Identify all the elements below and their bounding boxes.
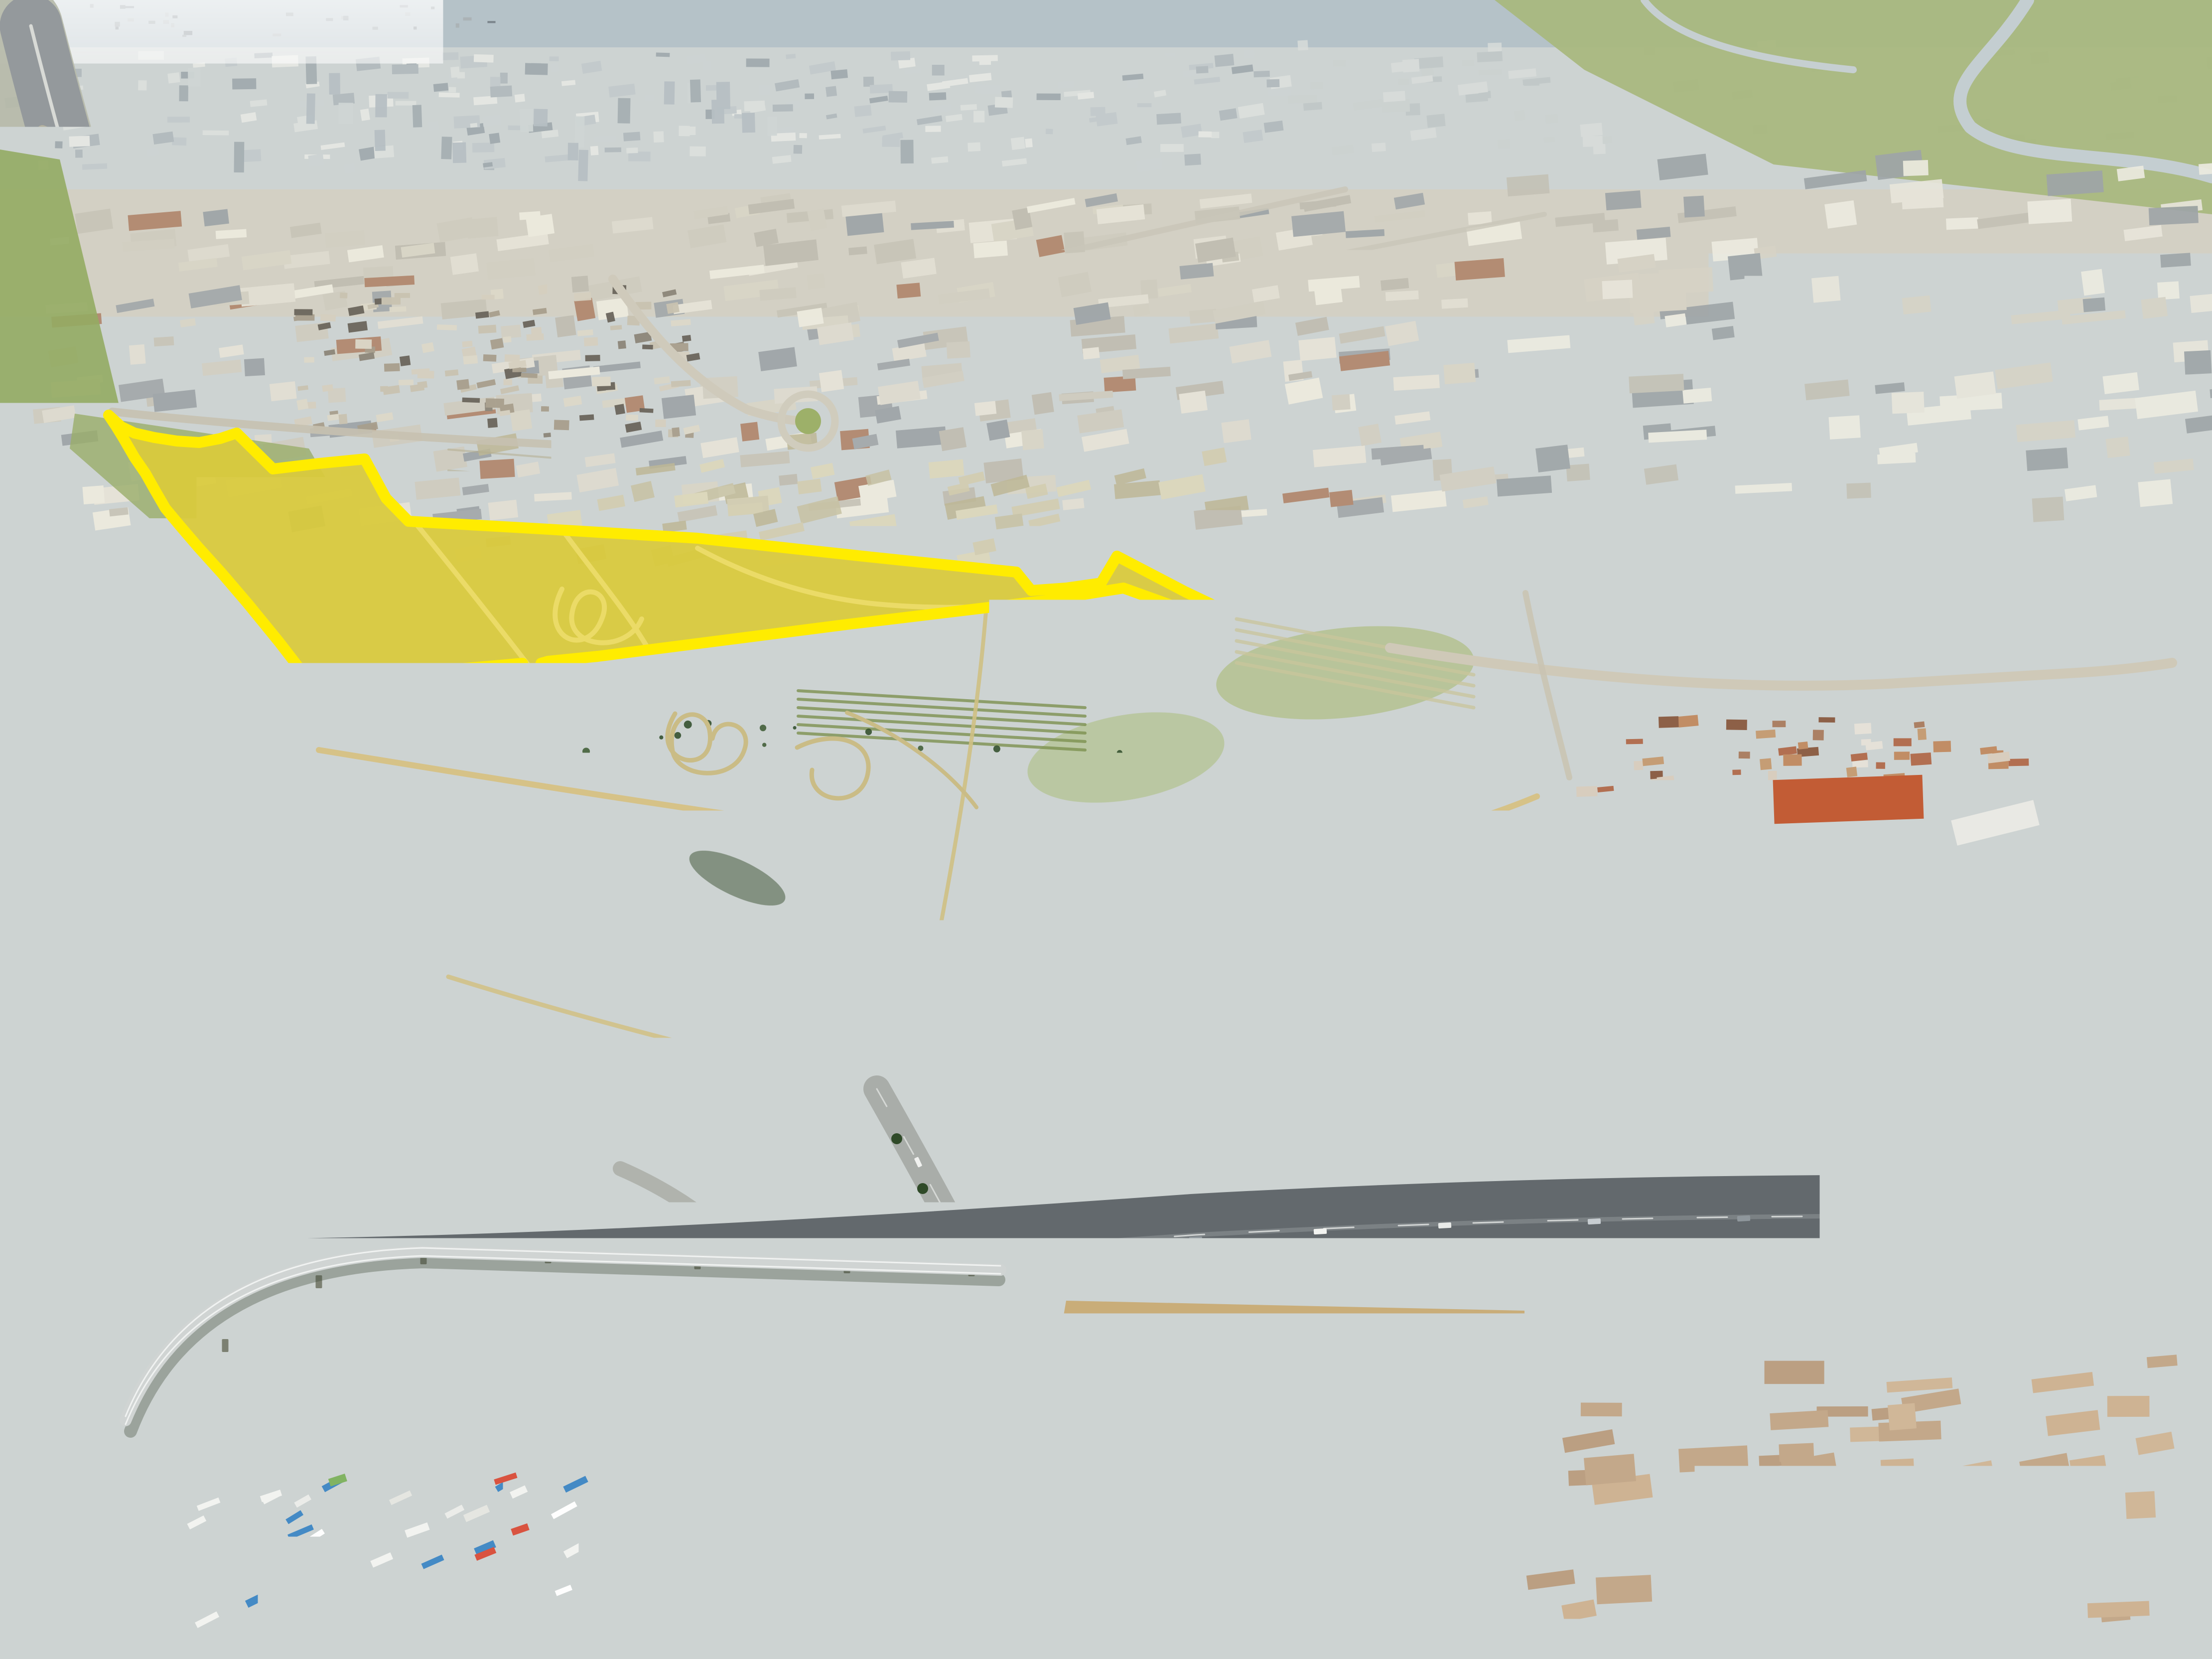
roundabout-south-center [965, 1544, 1008, 1588]
link-roundabouts-2 [985, 1609, 988, 1659]
gas-station-roof [776, 1495, 853, 1528]
link-roundabouts-1 [780, 1557, 942, 1569]
containers-1 [69, 1533, 114, 1558]
aerial-photo-canvas [0, 0, 2212, 1659]
warehouse-2 [46, 1596, 230, 1659]
asphalt-plant-2 [1345, 1321, 1365, 1360]
haze [0, 0, 2212, 309]
factory-chimney [1619, 526, 1627, 596]
big-tree [751, 815, 809, 859]
containers-2 [119, 1535, 149, 1556]
scene-layers [0, 0, 2212, 1659]
aerial-photo [0, 0, 2212, 1659]
asphalt-plant-3 [1369, 1326, 1379, 1356]
big-factory-2 [1801, 294, 1995, 399]
red-shed-rows [1690, 463, 1967, 539]
gas-station-canopy [770, 1461, 858, 1500]
white-tank-1 [2111, 472, 2159, 520]
asphalt-plant-1 [1305, 1315, 1340, 1366]
school-building [1773, 775, 1924, 824]
roundabout-ne-center [795, 408, 821, 434]
big-factory-3 [2050, 325, 2212, 433]
factory-tower [1520, 556, 1533, 604]
white-tank-2 [2161, 517, 2201, 557]
